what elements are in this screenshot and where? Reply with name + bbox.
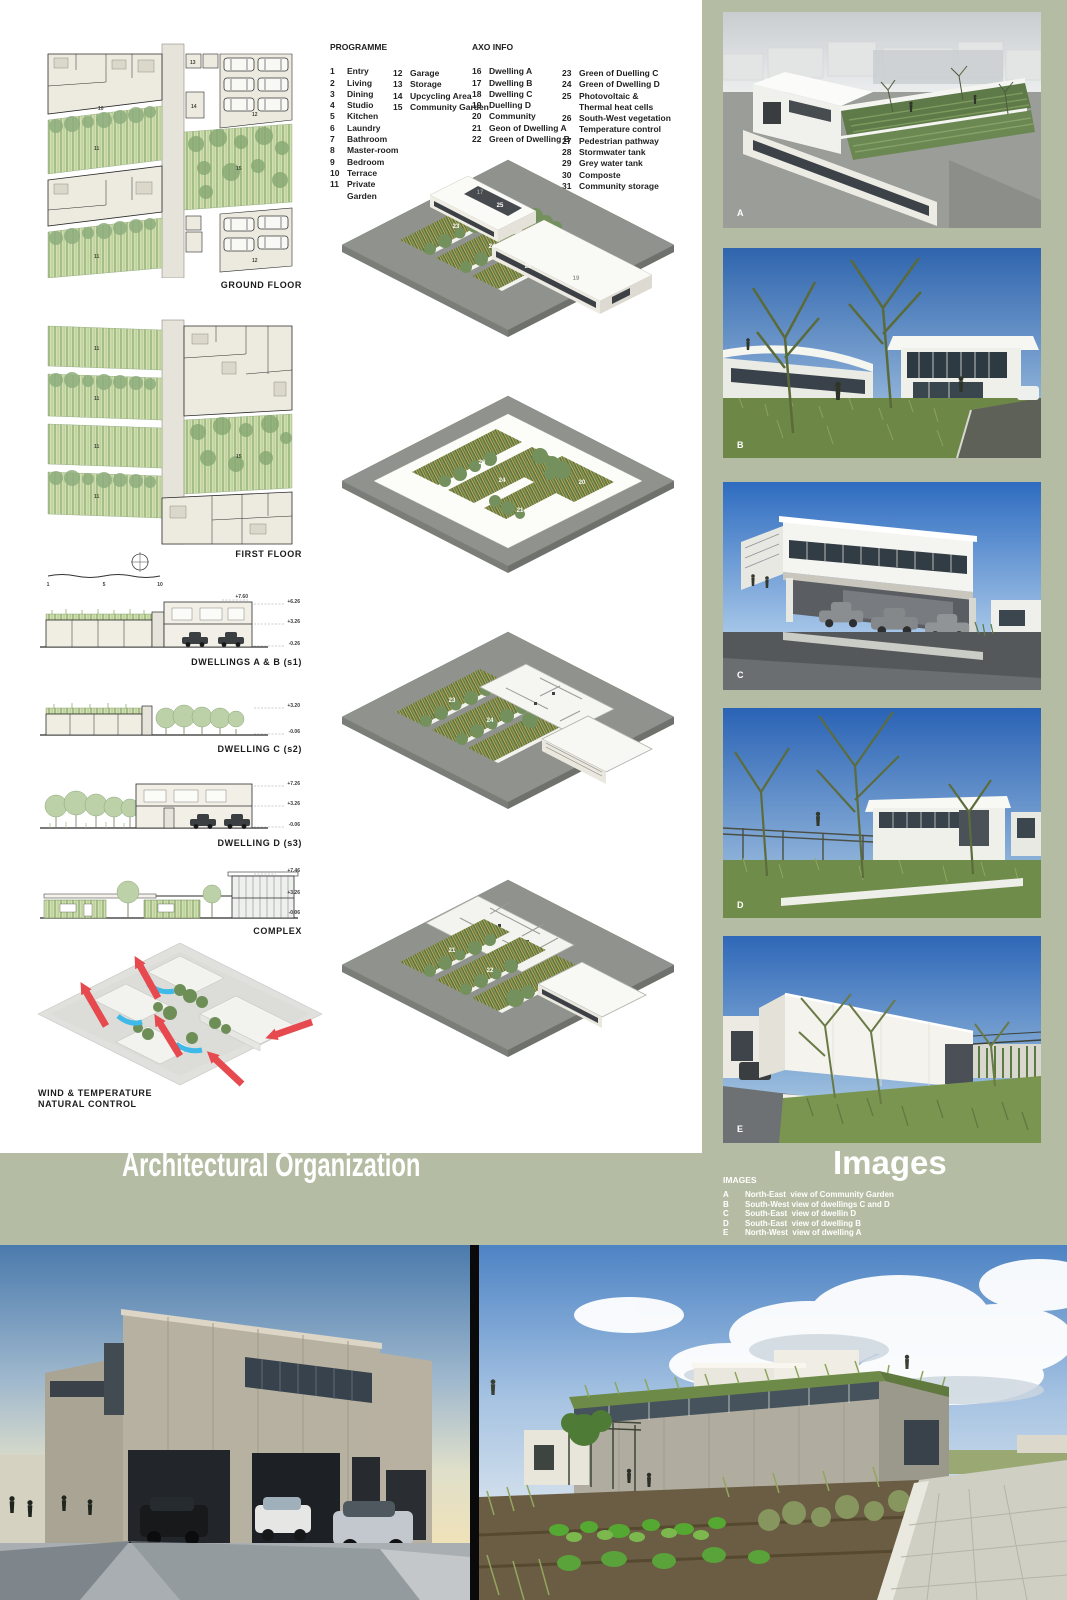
right-section-title: Images [833, 1144, 947, 1182]
axo-info-item: 27Pedestrian pathway [562, 136, 700, 147]
axo-number: 24 [487, 718, 494, 724]
images-legend-heading: IMAGES [723, 1175, 757, 1185]
photo-divider [470, 1245, 479, 1600]
image-legend-item: BSouth-West view of dwellings C and D [723, 1200, 1053, 1210]
axonometric-roof: 23 26 24 20 21 [330, 386, 686, 596]
axo-info-item: 24Green of Dwelling D [562, 79, 700, 90]
section-s1-label: DWELLINGS A & B (s1) [36, 657, 302, 667]
programme-item: 6Laundry [330, 123, 470, 134]
section-s2-label: DWELLING C (s2) [36, 744, 302, 754]
scale-tick: 1 [47, 582, 50, 588]
dwelling-unit-plan [184, 326, 292, 416]
plan-number: 12 [252, 258, 258, 264]
plan-number: 13 [190, 60, 196, 66]
wind-label-line2: NATURAL CONTROL [38, 1099, 152, 1110]
level-mark: +3.26 [287, 619, 300, 625]
render-image-e: E [723, 936, 1041, 1143]
axo-info-item: 26South-West vegetation Temperature cont… [562, 113, 700, 136]
plan-number: 11 [94, 146, 100, 152]
axo-number: 23 [457, 442, 464, 448]
plan-number: 15 [236, 166, 242, 172]
section-complex: +7.46 +3.26 -0.06 [36, 860, 302, 926]
level-mark: -0.26 [289, 641, 301, 647]
scale-bar [48, 575, 160, 578]
level-mark: +3.26 [287, 890, 300, 896]
axo-number: 23 [453, 224, 460, 230]
axonometric-complex: 17 25 19 23 24 21 [330, 148, 686, 366]
section-dwellings-ab: +7.60 +6.26 +3.26 -0.26 [36, 590, 302, 654]
plan-number: 14 [191, 104, 197, 110]
presentation-board: 10 11 11 12 13 14 15 12 GROUND FLOOR [0, 0, 1067, 1600]
axo-number: 23 [449, 698, 456, 704]
image-letter: A [737, 208, 744, 218]
programme-heading: PROGRAMME [330, 42, 470, 53]
scale-tick: 10 [157, 582, 163, 588]
person-on-roof [905, 1355, 909, 1369]
section-trees [156, 705, 244, 735]
axo-info-heading: AXO INFO [472, 42, 590, 53]
image-letter: C [737, 670, 744, 680]
white-building [887, 336, 1039, 406]
axo-info-item: 23Green of Duelling C [562, 68, 700, 79]
wind-diagram [30, 938, 330, 1088]
left-section-title: Architectural Organization [122, 1146, 420, 1184]
plan-number: 11 [94, 396, 100, 402]
image-letter: D [737, 900, 744, 910]
scale-tick: 5 [103, 582, 106, 588]
render-image-b: B [723, 248, 1041, 458]
distant-building [0, 1455, 45, 1545]
axo-number: 24 [499, 478, 506, 484]
level-mark: +7.26 [287, 781, 300, 787]
axo-number: 19 [573, 276, 580, 282]
axo-number: 21 [449, 948, 456, 954]
render-image-c: C [723, 482, 1041, 690]
section-dwelling-c: +3.20 -0.06 [36, 686, 302, 742]
first-floor-plan: 11 11 11 11 15 [36, 318, 302, 546]
plan-number: 15 [236, 454, 242, 460]
render-image-a: A [723, 12, 1041, 228]
plan-number: 11 [94, 444, 100, 450]
person-on-bridge [816, 812, 820, 826]
plan-number: 11 [94, 254, 100, 260]
section-s3-label: DWELLING D (s3) [36, 838, 302, 848]
ground-floor-label: GROUND FLOOR [36, 280, 302, 290]
render-image-d: D [723, 708, 1041, 918]
scale-and-compass: 1 5 10 [40, 552, 210, 588]
axonometric-first-floor: 23 24 [330, 616, 686, 844]
bottom-photo-dusk [0, 1245, 470, 1600]
axo-number: 22 [487, 968, 494, 974]
axonometric-ground-floor: 21 22 [330, 858, 686, 1110]
axo-number: 17 [477, 190, 484, 196]
level-mark: -0.06 [289, 729, 301, 735]
plan-number: 11 [94, 346, 100, 352]
section-dwelling-d: +7.26 +3.26 -0.06 [36, 770, 302, 836]
level-mark: +7.46 [287, 868, 300, 874]
wind-label-line1: WIND & TEMPERATURE [38, 1088, 152, 1099]
image-legend-item: DSouth-East view of dwelling B [723, 1219, 1053, 1229]
wind-diagram-label: WIND & TEMPERATURE NATURAL CONTROL [38, 1088, 152, 1110]
programme-item: 7Bathroom [330, 134, 470, 145]
images-legend: ANorth-East view of Community Garden BSo… [723, 1190, 1053, 1238]
corridor [162, 44, 184, 278]
distant-wall [1017, 1435, 1067, 1453]
dwelling-unit-plan [162, 492, 292, 544]
plan-number: 10 [98, 106, 104, 112]
north-compass-icon [131, 552, 149, 572]
section-trees [45, 791, 139, 828]
image-legend-item: ANorth-East view of Community Garden [723, 1190, 1053, 1200]
section-complex-label: COMPLEX [36, 926, 302, 936]
level-mark: +7.60 [235, 594, 248, 600]
level-mark: +6.26 [287, 599, 300, 605]
level-mark: -0.06 [289, 910, 301, 916]
ground-floor-plan: 10 11 11 12 13 14 15 12 [36, 40, 302, 278]
image-letter: B [737, 440, 744, 450]
axo-info-item: 25Photovoltaic & Thermal heat cells [562, 91, 700, 114]
car [1017, 386, 1039, 400]
image-letter: E [737, 1124, 743, 1134]
plan-number: 11 [94, 494, 100, 500]
level-mark: +3.26 [287, 801, 300, 807]
axo-number: 21 [525, 264, 532, 270]
axo-number: 20 [579, 480, 586, 486]
axo-number: 25 [497, 203, 504, 209]
image-legend-item: ENorth-West view of dwelling A [723, 1228, 1053, 1238]
section-tree [203, 885, 221, 918]
level-mark: -0.06 [289, 822, 301, 828]
axo-number: 26 [479, 460, 486, 466]
plan-number: 12 [252, 112, 258, 118]
bottom-photo-garden [479, 1245, 1067, 1600]
axo-number: 24 [489, 244, 496, 250]
level-mark: +3.20 [287, 703, 300, 709]
section-tree [117, 881, 139, 918]
image-legend-item: CSouth-East view of dwellin D [723, 1209, 1053, 1219]
axo-number: 21 [517, 508, 524, 514]
